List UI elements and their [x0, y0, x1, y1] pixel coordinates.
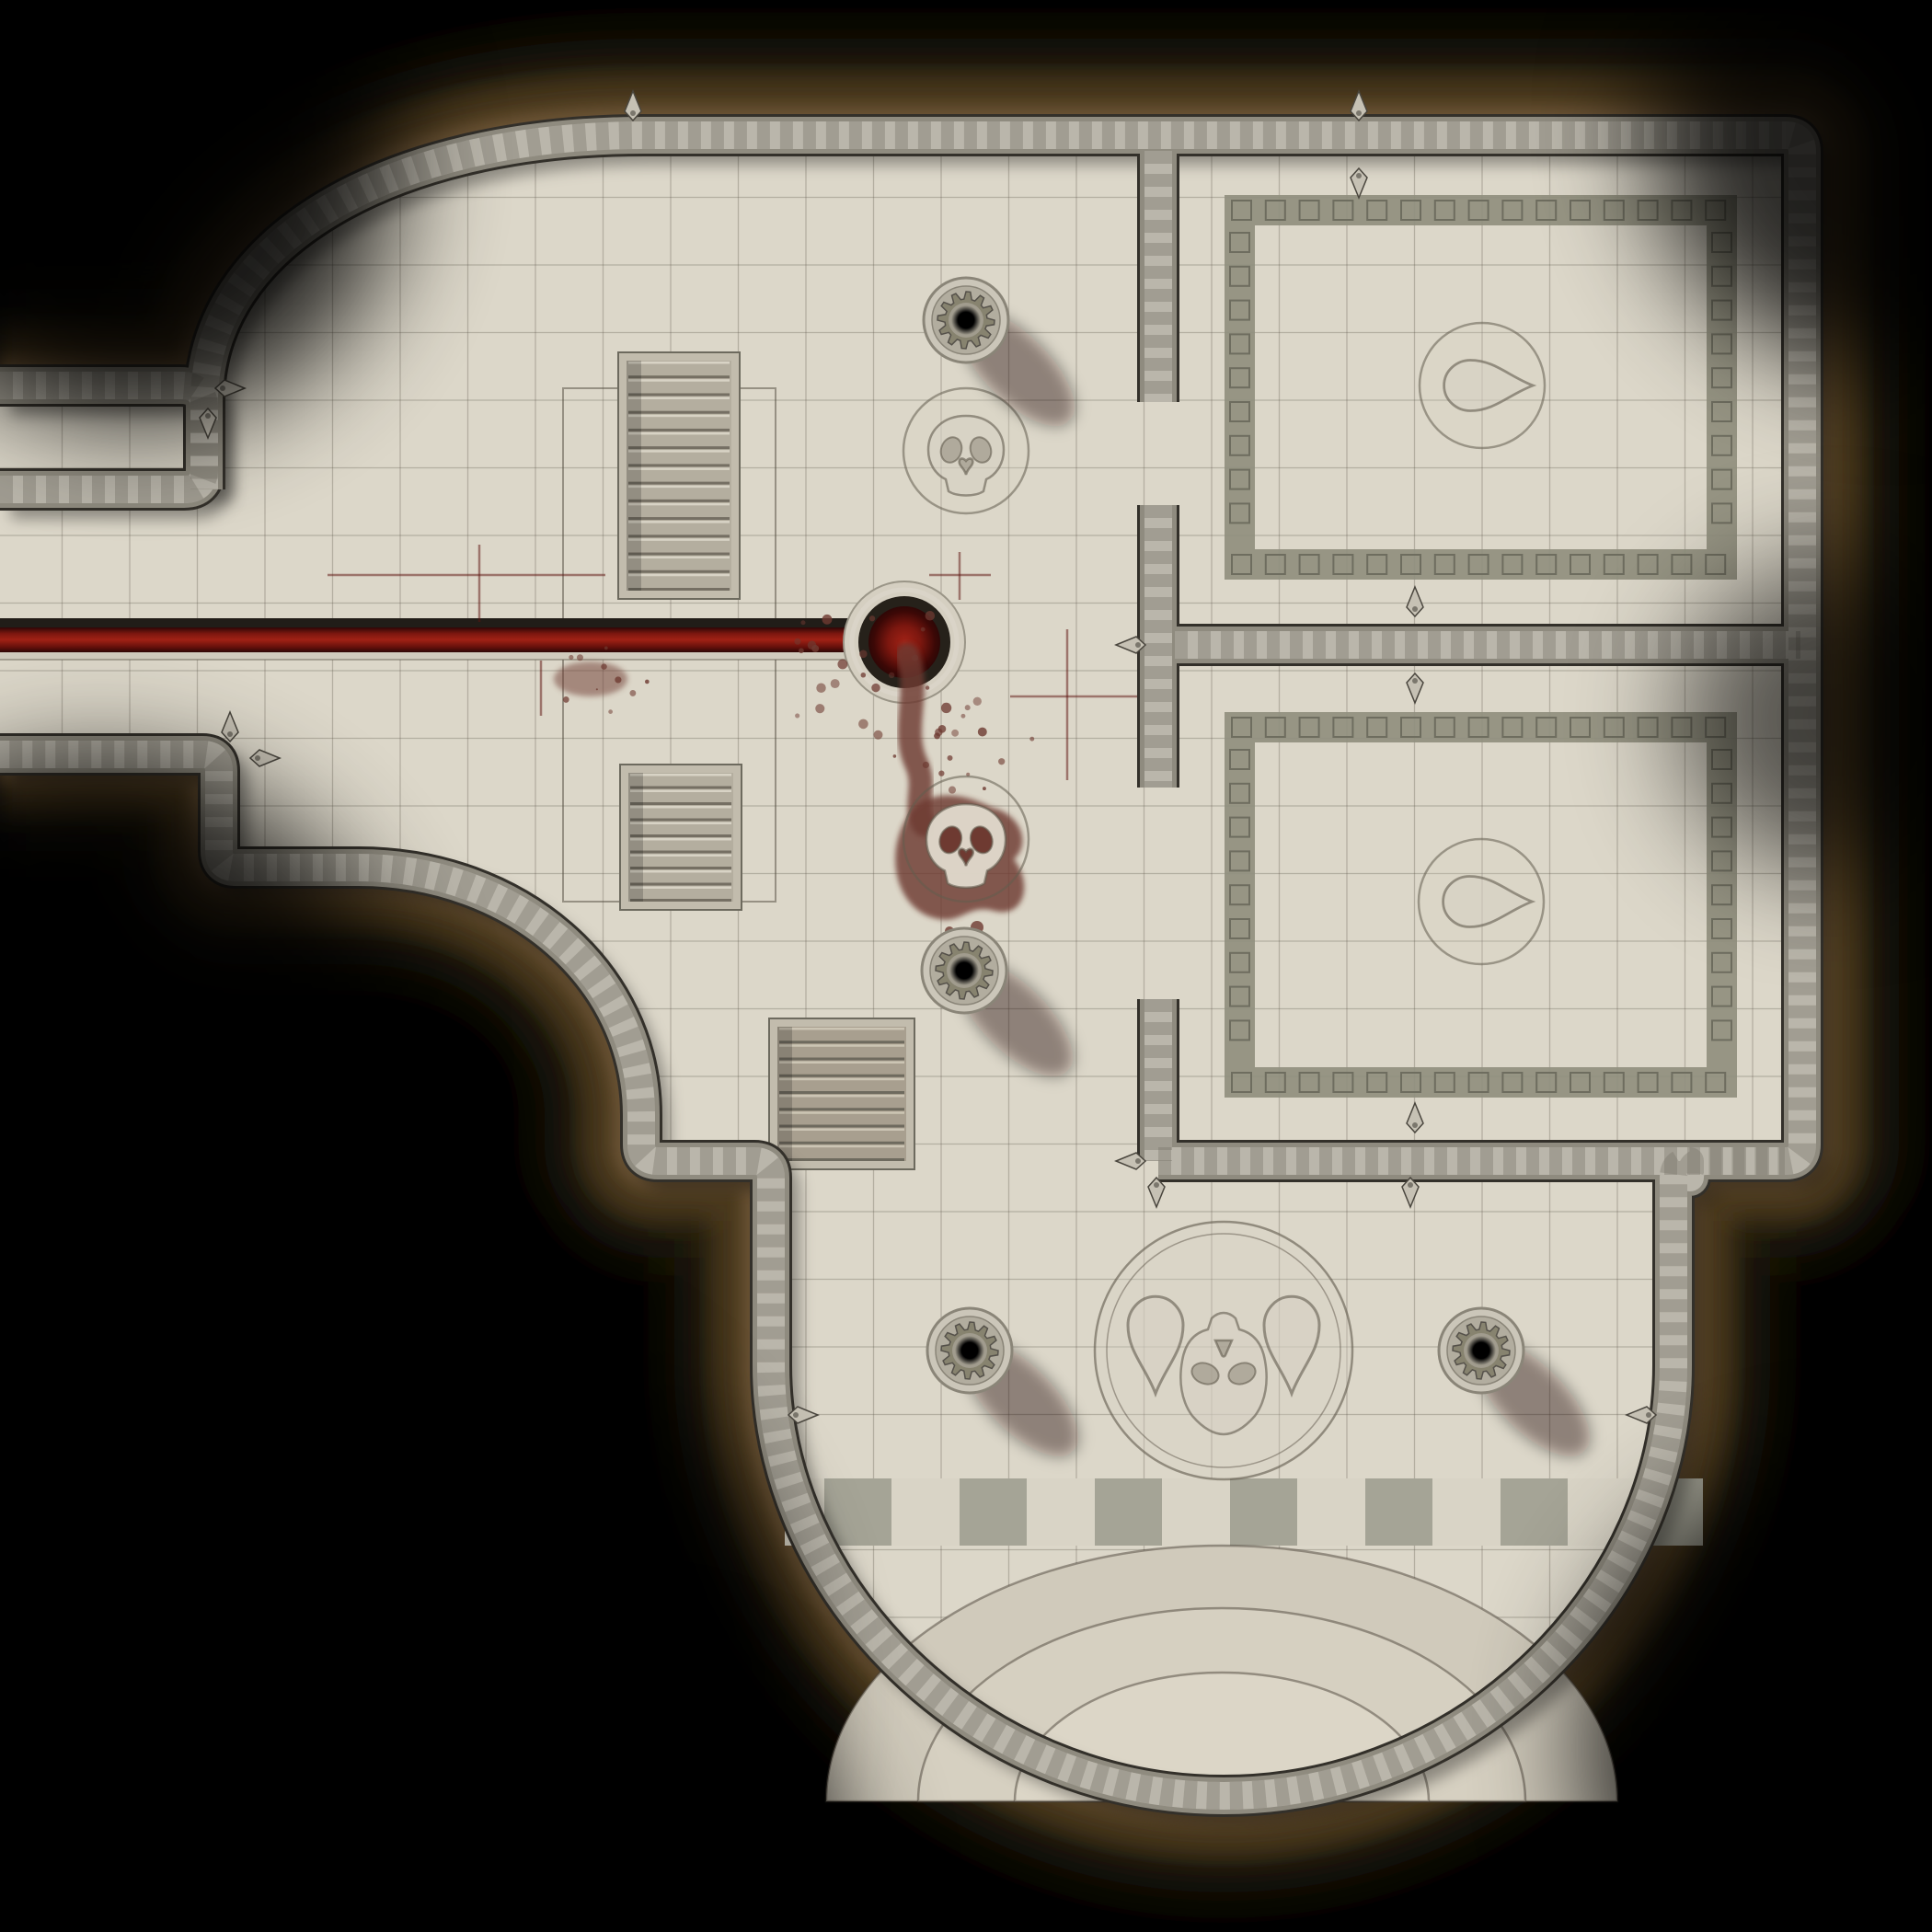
blood-channel [0, 627, 880, 652]
blood-channel-lip [0, 652, 868, 660]
dungeon-battle-map [0, 0, 1932, 1932]
feature-layer [0, 0, 1932, 1932]
blood-stream [907, 655, 924, 824]
blood-channel-lip-line [0, 659, 868, 661]
stairs-north [618, 352, 740, 599]
stairs-south [620, 765, 742, 910]
map-svg [0, 0, 1932, 1932]
stairs-to-lower-hall [769, 1018, 914, 1169]
